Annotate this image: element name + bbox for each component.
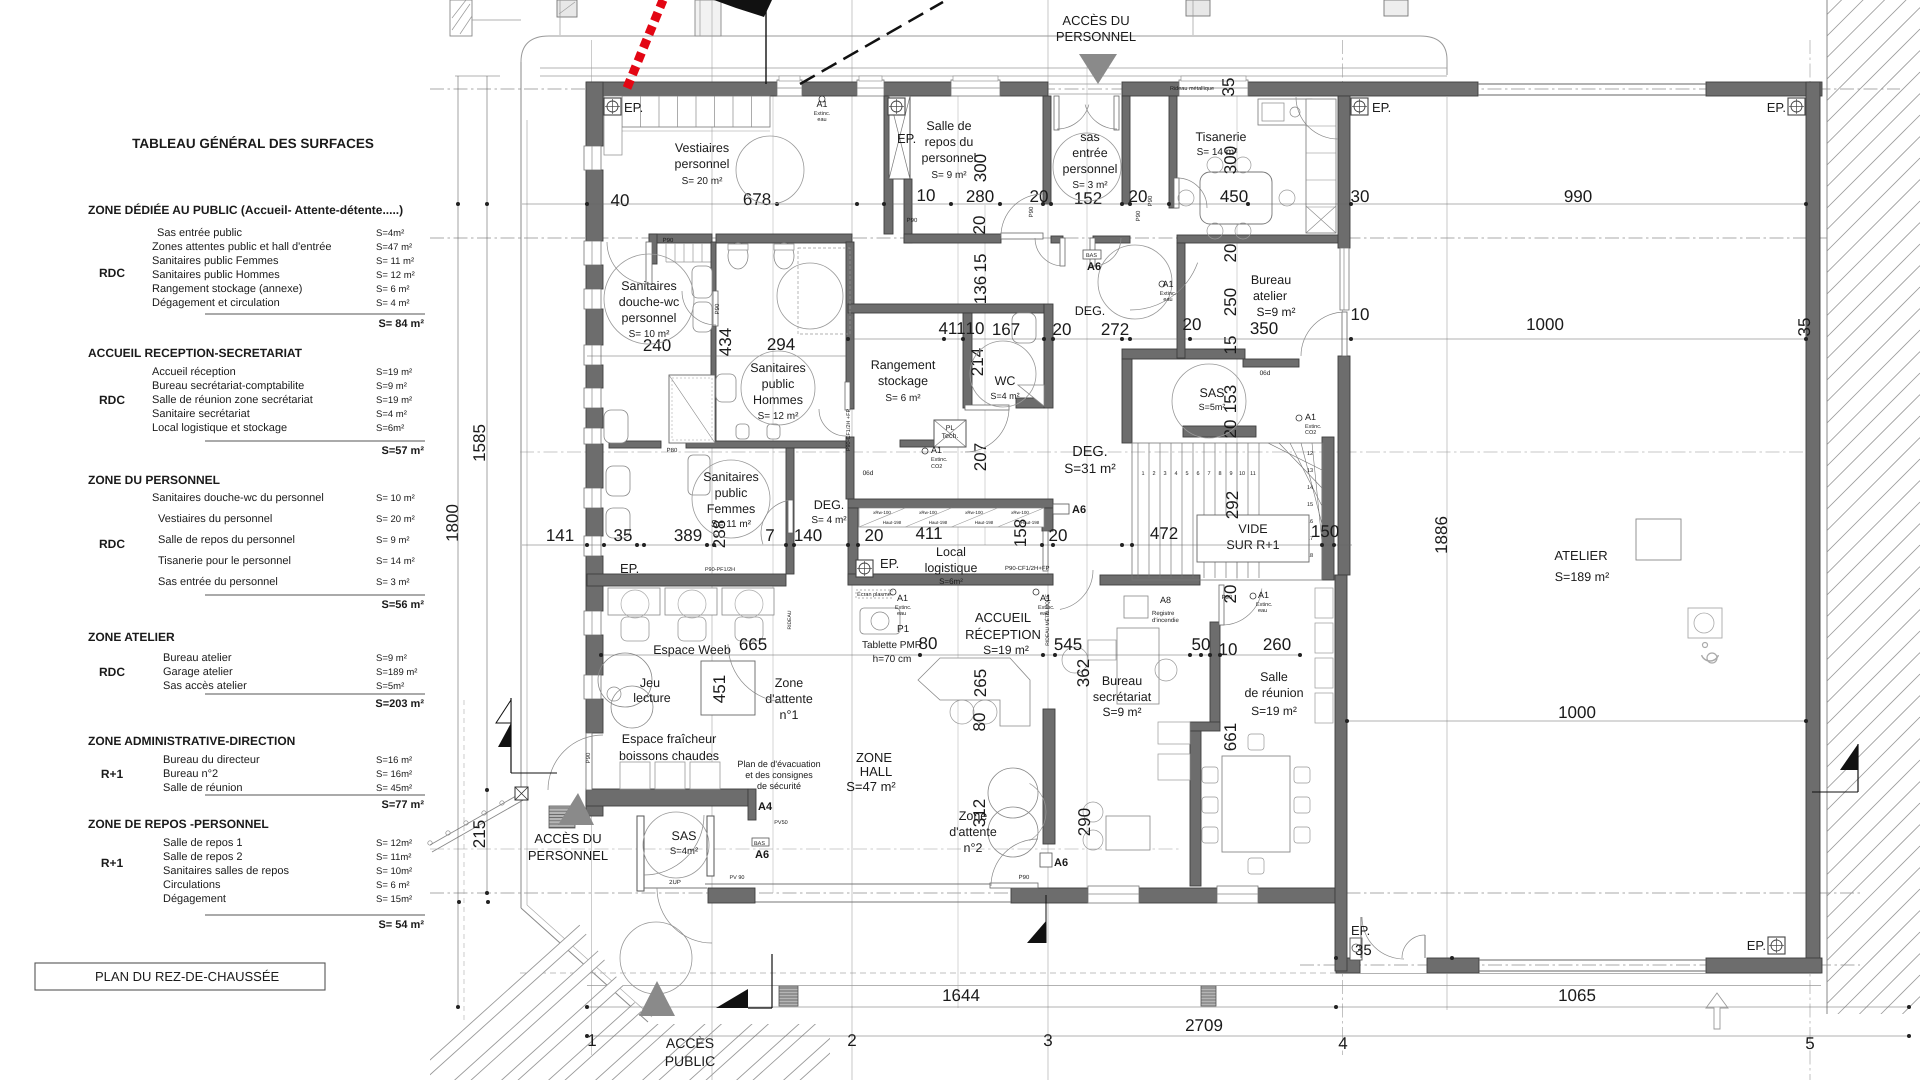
svg-text:stockage: stockage	[878, 374, 928, 388]
svg-text:P90-CF1/2H+FP: P90-CF1/2H+FP	[1005, 565, 1050, 572]
svg-text:150: 150	[1311, 522, 1339, 541]
svg-text:S=203 m²: S=203 m²	[375, 698, 424, 710]
svg-text:S= 54 m²: S= 54 m²	[378, 919, 424, 931]
svg-text:ACCÈS DU: ACCÈS DU	[1062, 13, 1129, 28]
svg-text:2: 2	[1152, 471, 1155, 477]
svg-text:Sanitaire secrétariat: Sanitaire secrétariat	[152, 408, 250, 420]
svg-text:PV50: PV50	[774, 820, 787, 826]
svg-text:35: 35	[614, 526, 633, 545]
svg-text:xRw-100: xRw-100	[1011, 510, 1029, 515]
svg-text:S= 11 m²: S= 11 m²	[376, 256, 414, 267]
svg-text:entrée: entrée	[1072, 146, 1107, 160]
svg-text:Sanitaires salles de repos: Sanitaires salles de repos	[163, 865, 289, 877]
svg-text:350: 350	[1250, 319, 1278, 338]
svg-text:S=9 m²: S=9 m²	[1256, 305, 1295, 319]
svg-text:Bureau du directeur: Bureau du directeur	[163, 754, 260, 766]
svg-text:P90: P90	[907, 217, 918, 224]
svg-text:secrétariat: secrétariat	[1093, 690, 1152, 704]
svg-text:Tablette PMR: Tablette PMR	[862, 640, 922, 651]
svg-text:1: 1	[1141, 471, 1144, 477]
svg-text:A1: A1	[1162, 279, 1173, 289]
svg-text:300: 300	[971, 154, 990, 182]
svg-text:20: 20	[970, 216, 989, 235]
svg-text:HALL: HALL	[860, 764, 893, 779]
svg-text:13: 13	[1307, 468, 1313, 474]
svg-text:Rangement: Rangement	[871, 358, 936, 372]
svg-text:20: 20	[1053, 320, 1072, 339]
svg-text:EP.: EP.	[897, 131, 916, 146]
svg-text:A6: A6	[1054, 857, 1068, 869]
svg-text:xRw-100: xRw-100	[873, 510, 891, 515]
svg-text:eau: eau	[1163, 297, 1172, 303]
svg-text:RDC: RDC	[99, 266, 125, 280]
svg-text:P90-CF1/2H +FP: P90-CF1/2H +FP	[846, 409, 852, 452]
svg-text:20: 20	[865, 526, 884, 545]
svg-text:S=19 m²: S=19 m²	[1251, 704, 1297, 718]
svg-text:S= 3 m²: S= 3 m²	[376, 577, 410, 588]
svg-text:ZONE DE REPOS -PERSONNEL: ZONE DE REPOS -PERSONNEL	[88, 817, 269, 831]
svg-text:public: public	[762, 377, 795, 391]
svg-text:06d: 06d	[863, 470, 874, 477]
svg-text:S=4m²: S=4m²	[376, 228, 404, 239]
svg-text:990: 990	[1564, 187, 1592, 206]
svg-text:411: 411	[915, 524, 942, 543]
svg-text:4: 4	[1338, 1034, 1347, 1053]
svg-text:A6: A6	[755, 849, 769, 861]
svg-text:661: 661	[1221, 723, 1240, 751]
svg-text:1000: 1000	[1558, 703, 1596, 722]
svg-text:35: 35	[1795, 318, 1814, 337]
svg-text:250: 250	[1221, 288, 1240, 316]
svg-text:public: public	[715, 486, 748, 500]
svg-text:CO2: CO2	[931, 464, 942, 470]
svg-text:20: 20	[1183, 315, 1202, 334]
svg-text:Plan de d'évacuation: Plan de d'évacuation	[737, 759, 820, 769]
svg-text:BAS: BAS	[754, 841, 765, 847]
svg-text:ZONE ADMINISTRATIVE-DIRECTION: ZONE ADMINISTRATIVE-DIRECTION	[88, 734, 295, 748]
svg-text:Hommes: Hommes	[753, 393, 803, 407]
svg-text:Rideau métallique: Rideau métallique	[1170, 85, 1214, 92]
svg-text:Circulations: Circulations	[163, 879, 221, 891]
svg-text:2: 2	[847, 1031, 856, 1050]
svg-text:S=56 m²: S=56 m²	[382, 599, 425, 611]
svg-text:S= 10m²: S= 10m²	[376, 866, 412, 877]
svg-text:ZONE: ZONE	[856, 750, 892, 765]
svg-text:DEG.: DEG.	[814, 498, 845, 512]
svg-text:S=47 m²: S=47 m²	[846, 779, 896, 794]
svg-text:S=47 m²: S=47 m²	[376, 242, 412, 253]
svg-text:1000: 1000	[1526, 315, 1564, 334]
svg-text:de réunion: de réunion	[1244, 686, 1303, 700]
svg-text:douche-wc: douche-wc	[619, 295, 679, 309]
svg-text:R+1: R+1	[101, 767, 124, 781]
svg-text:S=19 m²: S=19 m²	[376, 367, 412, 378]
svg-text:d'attente: d'attente	[765, 692, 813, 706]
svg-text:PV 90: PV 90	[730, 875, 745, 881]
svg-text:472: 472	[1150, 524, 1178, 543]
svg-text:S= 16m²: S= 16m²	[376, 769, 412, 780]
svg-text:personnel: personnel	[675, 157, 730, 171]
svg-text:140: 140	[794, 526, 822, 545]
svg-text:EP.: EP.	[1351, 923, 1370, 938]
svg-text:S=189 m²: S=189 m²	[376, 667, 417, 678]
svg-text:Garage atelier: Garage atelier	[163, 666, 233, 678]
svg-text:7: 7	[765, 526, 774, 545]
svg-text:eau: eau	[897, 611, 906, 617]
svg-text:152: 152	[1074, 189, 1102, 208]
svg-text:ATELIER: ATELIER	[1554, 548, 1607, 563]
svg-text:P90: P90	[714, 303, 721, 314]
svg-text:S= 9 m²: S= 9 m²	[376, 535, 410, 546]
svg-text:2UP: 2UP	[669, 879, 681, 886]
svg-text:14: 14	[1307, 485, 1313, 491]
svg-text:450: 450	[1220, 187, 1248, 206]
svg-text:ACCÈS DU: ACCÈS DU	[534, 831, 601, 846]
svg-text:411: 411	[938, 319, 965, 338]
svg-text:PUBLIC: PUBLIC	[665, 1053, 716, 1069]
svg-text:P1: P1	[897, 624, 910, 635]
svg-text:ACCÈS: ACCÈS	[666, 1035, 714, 1051]
svg-text:665: 665	[739, 635, 767, 654]
svg-text:214: 214	[968, 348, 987, 376]
svg-text:RIDEAU MÉTALLIQUE: RIDEAU MÉTALLIQUE	[1044, 594, 1051, 646]
svg-text:Tech.: Tech.	[942, 432, 959, 440]
svg-text:WC: WC	[995, 374, 1016, 388]
svg-text:A1: A1	[931, 445, 942, 455]
svg-text:A6: A6	[1087, 261, 1101, 273]
svg-text:S=6m²: S=6m²	[376, 423, 404, 434]
svg-text:h=70 cm: h=70 cm	[873, 654, 912, 665]
svg-text:Bureau n°2: Bureau n°2	[163, 768, 218, 780]
svg-text:1065: 1065	[1558, 986, 1596, 1005]
svg-text:141: 141	[546, 526, 574, 545]
svg-text:EP.: EP.	[1372, 100, 1391, 115]
svg-text:Salle de repos 2: Salle de repos 2	[163, 851, 243, 863]
svg-text:et des consignes: et des consignes	[745, 770, 813, 780]
svg-text:312: 312	[970, 799, 989, 827]
svg-text:RIDEAU: RIDEAU	[787, 610, 793, 629]
svg-text:Sanitaires public Femmes: Sanitaires public Femmes	[152, 255, 279, 267]
svg-text:06d: 06d	[1260, 370, 1271, 377]
svg-text:S=9 m²: S=9 m²	[376, 653, 407, 664]
svg-text:RDC: RDC	[99, 537, 125, 551]
svg-text:eau: eau	[817, 117, 826, 123]
svg-text:A6: A6	[1072, 504, 1086, 516]
svg-text:sas: sas	[1080, 130, 1099, 144]
svg-text:S=4m²: S=4m²	[670, 846, 698, 857]
svg-text:P90: P90	[1147, 195, 1154, 206]
svg-text:30: 30	[1351, 187, 1370, 206]
svg-text:S=19 m²: S=19 m²	[376, 395, 412, 406]
svg-text:40: 40	[611, 191, 630, 210]
svg-text:9: 9	[1229, 471, 1232, 477]
svg-text:A1: A1	[816, 99, 827, 109]
svg-text:eau: eau	[1258, 608, 1267, 614]
svg-text:S=5m²: S=5m²	[376, 681, 404, 692]
svg-text:PLAN DU REZ-DE-CHAUSSÉE: PLAN DU REZ-DE-CHAUSSÉE	[95, 969, 280, 984]
svg-text:362: 362	[1074, 659, 1093, 687]
svg-text:S=31 m²: S=31 m²	[1064, 461, 1116, 476]
svg-text:153: 153	[1221, 385, 1240, 413]
svg-text:1: 1	[587, 1031, 596, 1050]
svg-text:de sécurité: de sécurité	[757, 781, 801, 791]
svg-text:P90: P90	[663, 237, 674, 244]
svg-text:BAS: BAS	[1086, 253, 1097, 259]
svg-text:15: 15	[971, 254, 990, 273]
svg-text:Salle de repos du personnel: Salle de repos du personnel	[158, 534, 295, 546]
svg-text:Vestiaires: Vestiaires	[675, 141, 729, 155]
svg-text:260: 260	[1263, 635, 1291, 654]
svg-text:Local: Local	[936, 545, 966, 559]
svg-text:20: 20	[1049, 526, 1068, 545]
svg-text:Sas accès atelier: Sas accès atelier	[163, 680, 247, 692]
svg-text:Haut-198: Haut-198	[975, 520, 994, 525]
svg-text:xRw-100: xRw-100	[965, 510, 983, 515]
svg-text:Salle de réunion zone secrétar: Salle de réunion zone secrétariat	[152, 394, 313, 406]
svg-text:PL: PL	[946, 425, 955, 432]
svg-text:DEG.: DEG.	[1075, 304, 1106, 318]
svg-text:S= 20 m²: S= 20 m²	[682, 176, 724, 187]
svg-text:80: 80	[919, 634, 938, 653]
svg-text:SAS: SAS	[671, 829, 696, 843]
svg-text:3: 3	[1043, 1031, 1052, 1050]
svg-text:ZONE DÉDIÉE AU PUBLIC (Accueil: ZONE DÉDIÉE AU PUBLIC (Accueil- Attente-…	[88, 203, 403, 217]
svg-text:RÉCEPTION: RÉCEPTION	[965, 627, 1041, 642]
svg-text:EP.: EP.	[624, 100, 643, 115]
svg-text:10: 10	[1351, 305, 1370, 324]
svg-text:S= 6 m²: S= 6 m²	[376, 284, 410, 295]
svg-text:S= 10 m²: S= 10 m²	[376, 493, 415, 504]
svg-text:280: 280	[966, 187, 994, 206]
svg-text:A1: A1	[1305, 412, 1316, 422]
svg-text:Salle de: Salle de	[926, 119, 971, 133]
svg-text:Dégagement et circulation: Dégagement et circulation	[152, 297, 280, 309]
svg-text:389: 389	[674, 526, 702, 545]
svg-text:434: 434	[716, 328, 735, 356]
svg-text:240: 240	[643, 336, 671, 355]
svg-text:P90: P90	[1135, 210, 1142, 221]
svg-text:Sanitaires: Sanitaires	[621, 279, 677, 293]
svg-text:S= 9 m²: S= 9 m²	[931, 170, 967, 181]
svg-text:5: 5	[1805, 1034, 1814, 1053]
svg-text:Registre: Registre	[1152, 610, 1175, 617]
svg-text:2709: 2709	[1185, 1016, 1223, 1035]
svg-text:80: 80	[970, 713, 989, 732]
svg-text:Espace fraîcheur: Espace fraîcheur	[622, 732, 717, 746]
svg-text:20: 20	[1221, 420, 1240, 439]
svg-text:Haut-198: Haut-198	[883, 520, 902, 525]
svg-text:Bureau: Bureau	[1251, 273, 1291, 287]
svg-text:atelier: atelier	[1253, 289, 1287, 303]
svg-text:logistique: logistique	[925, 561, 978, 575]
svg-text:451: 451	[710, 675, 729, 703]
svg-text:678: 678	[743, 190, 771, 209]
svg-text:Écran plasme: Écran plasme	[857, 591, 891, 598]
svg-text:35: 35	[1219, 78, 1238, 97]
svg-text:S= 15m²: S= 15m²	[376, 894, 412, 905]
svg-text:RDC: RDC	[99, 393, 125, 407]
svg-text:7: 7	[1207, 471, 1210, 477]
svg-text:personnel: personnel	[1063, 162, 1118, 176]
svg-text:TABLEAU GÉNÉRAL DES SURFACES: TABLEAU GÉNÉRAL DES SURFACES	[132, 136, 374, 151]
svg-text:15: 15	[1307, 502, 1313, 508]
svg-text:S=9 m²: S=9 m²	[1102, 705, 1141, 719]
svg-text:CO2: CO2	[1305, 430, 1316, 436]
svg-text:Local logistique et stockage: Local logistique et stockage	[152, 422, 287, 434]
svg-text:A4: A4	[758, 801, 773, 813]
svg-text:290: 290	[1075, 808, 1094, 836]
svg-text:S= 6 m²: S= 6 m²	[376, 880, 410, 891]
svg-text:S=16 m²: S=16 m²	[376, 755, 412, 766]
svg-text:Rangement stockage (annexe): Rangement stockage (annexe)	[152, 283, 302, 295]
svg-text:P90: P90	[1222, 594, 1233, 601]
svg-text:S= 12m²: S= 12m²	[376, 838, 412, 849]
svg-text:Salle de repos 1: Salle de repos 1	[163, 837, 243, 849]
svg-text:DEG.: DEG.	[1072, 444, 1107, 460]
svg-text:A1: A1	[1258, 590, 1269, 600]
svg-text:Dégagement: Dégagement	[163, 893, 226, 905]
svg-text:Vestiaires du personnel: Vestiaires du personnel	[158, 513, 272, 525]
svg-text:lecture: lecture	[633, 691, 671, 705]
svg-text:personnel: personnel	[922, 151, 977, 165]
svg-text:PERSONNEL: PERSONNEL	[528, 848, 608, 863]
svg-text:158: 158	[1011, 519, 1030, 547]
svg-text:136: 136	[971, 276, 990, 304]
svg-text:15: 15	[1221, 336, 1240, 355]
svg-text:EP.: EP.	[620, 561, 639, 576]
svg-text:S= 45m²: S= 45m²	[376, 783, 412, 794]
svg-text:6: 6	[1196, 471, 1199, 477]
svg-text:S= 12 m²: S= 12 m²	[376, 270, 415, 281]
svg-text:265: 265	[971, 669, 990, 697]
svg-text:Sanitaires douche-wc du person: Sanitaires douche-wc du personnel	[152, 492, 324, 504]
svg-text:Tisanerie: Tisanerie	[1196, 130, 1247, 144]
svg-text:RDC: RDC	[99, 665, 125, 679]
svg-text:Zone: Zone	[775, 676, 804, 690]
svg-text:S=9 m²: S=9 m²	[376, 381, 407, 392]
svg-text:1800: 1800	[443, 504, 462, 542]
svg-text:167: 167	[992, 320, 1020, 339]
svg-text:P90: P90	[585, 752, 592, 763]
svg-text:Zones attentes public et hall: Zones attentes public et hall d'entrée	[152, 241, 331, 253]
svg-text:3: 3	[1163, 471, 1166, 477]
svg-text:EP.: EP.	[880, 556, 899, 571]
svg-text:S= 84 m²: S= 84 m²	[378, 318, 424, 330]
svg-text:5: 5	[1185, 471, 1188, 477]
svg-text:S= 14 m²: S= 14 m²	[376, 556, 415, 567]
svg-text:P90-PF1/2H: P90-PF1/2H	[705, 567, 735, 573]
svg-text:S=57 m²: S=57 m²	[382, 445, 425, 457]
svg-text:10: 10	[1239, 471, 1245, 477]
svg-text:1644: 1644	[942, 986, 980, 1005]
svg-text:Sanitaires: Sanitaires	[703, 470, 759, 484]
svg-text:Bureau secrétariat-comptabilit: Bureau secrétariat-comptabilite	[152, 380, 304, 392]
svg-text:8: 8	[1218, 471, 1221, 477]
svg-text:S=77 m²: S=77 m²	[382, 799, 425, 811]
svg-text:P90: P90	[1019, 874, 1030, 881]
svg-text:Bureau atelier: Bureau atelier	[163, 652, 232, 664]
svg-text:S= 20 m²: S= 20 m²	[376, 514, 415, 525]
svg-text:35: 35	[1355, 942, 1372, 959]
svg-text:215: 215	[470, 820, 489, 848]
svg-text:S= 11m²: S= 11m²	[376, 852, 411, 863]
svg-text:R+1: R+1	[101, 856, 124, 870]
svg-text:S=6m²: S=6m²	[939, 577, 963, 586]
svg-text:S=4 m²: S=4 m²	[376, 409, 407, 420]
svg-text:P80: P80	[667, 447, 678, 454]
svg-text:50: 50	[1192, 635, 1211, 654]
svg-text:repos du: repos du	[925, 135, 974, 149]
svg-text:4: 4	[1174, 471, 1177, 477]
svg-text:Extinc.: Extinc.	[931, 457, 948, 463]
svg-text:Accueil réception: Accueil réception	[152, 366, 236, 378]
svg-text:Bureau: Bureau	[1102, 674, 1142, 688]
svg-text:S= 6 m²: S= 6 m²	[885, 393, 921, 404]
svg-text:S= 12 m²: S= 12 m²	[758, 411, 800, 422]
svg-text:S=189 m²: S=189 m²	[1555, 570, 1610, 584]
svg-text:A8: A8	[1160, 595, 1171, 605]
svg-text:n°2: n°2	[964, 841, 983, 855]
svg-text:Salle: Salle	[1260, 670, 1288, 684]
svg-text:d'incendie: d'incendie	[1152, 617, 1179, 624]
svg-text:PERSONNEL: PERSONNEL	[1056, 29, 1136, 44]
svg-text:S= 4 m²: S= 4 m²	[811, 515, 847, 526]
svg-text:12: 12	[1307, 451, 1313, 457]
svg-text:545: 545	[1054, 635, 1082, 654]
svg-text:ACCUEIL: ACCUEIL	[975, 610, 1031, 625]
svg-text:S=4 m²: S=4 m²	[990, 391, 1019, 401]
svg-text:EP.: EP.	[1767, 100, 1786, 115]
svg-text:boissons chaudes: boissons chaudes	[619, 749, 719, 763]
svg-text:272: 272	[1101, 320, 1129, 339]
svg-text:ZONE DU PERSONNEL: ZONE DU PERSONNEL	[88, 473, 220, 487]
svg-text:xRw-100: xRw-100	[919, 510, 937, 515]
svg-text:Tisanerie pour le personnel: Tisanerie pour le personnel	[158, 555, 291, 567]
svg-text:1886: 1886	[1432, 516, 1451, 554]
svg-text:Salle de réunion: Salle de réunion	[163, 782, 243, 794]
svg-text:VIDE: VIDE	[1238, 522, 1267, 536]
svg-text:11: 11	[1250, 471, 1256, 477]
svg-text:207: 207	[971, 443, 990, 471]
svg-text:10: 10	[966, 319, 985, 338]
svg-text:20: 20	[1221, 244, 1240, 263]
svg-text:S= 4 m²: S= 4 m²	[376, 298, 410, 309]
svg-text:Sas entrée du personnel: Sas entrée du personnel	[158, 576, 278, 588]
svg-text:300: 300	[1221, 146, 1240, 174]
svg-text:Sanitaires public Hommes: Sanitaires public Hommes	[152, 269, 280, 281]
svg-text:20: 20	[1030, 187, 1049, 206]
svg-text:ACCUEIL RECEPTION-SECRETARIAT: ACCUEIL RECEPTION-SECRETARIAT	[88, 346, 303, 360]
svg-text:n°1: n°1	[780, 708, 799, 722]
svg-text:Jeu: Jeu	[640, 676, 660, 690]
svg-text:1585: 1585	[470, 424, 489, 462]
svg-text:ZONE ATELIER: ZONE ATELIER	[88, 630, 175, 644]
svg-text:P90: P90	[1028, 206, 1035, 217]
svg-text:EP.: EP.	[1747, 938, 1766, 953]
svg-text:Sas entrée public: Sas entrée public	[157, 227, 242, 239]
svg-text:Femmes: Femmes	[707, 502, 756, 516]
svg-text:personnel: personnel	[622, 311, 677, 325]
svg-text:292: 292	[1223, 491, 1242, 519]
svg-text:10: 10	[917, 186, 936, 205]
svg-text:A1: A1	[897, 593, 908, 603]
svg-text:Sanitaires: Sanitaires	[750, 361, 806, 375]
